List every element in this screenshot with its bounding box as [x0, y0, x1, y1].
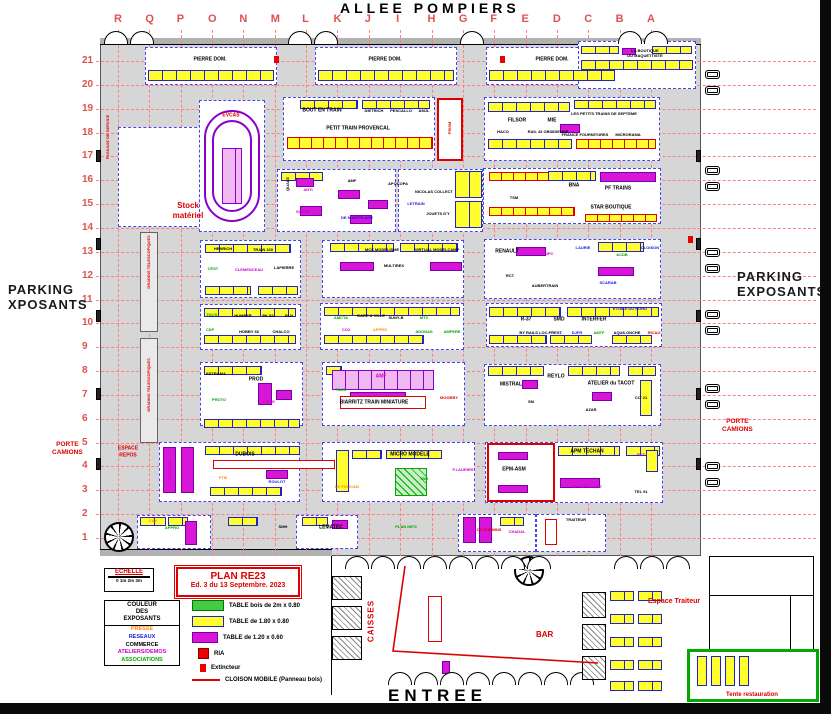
car-icon [705, 400, 720, 409]
label-pierre-dom: PIERRE DOM. [193, 58, 226, 63]
table-strip-y [489, 335, 547, 344]
evcas-center-table [222, 148, 242, 204]
wall-door [696, 150, 701, 162]
car-icon [705, 462, 720, 471]
label-train-160: TRAIN 160 [253, 248, 273, 252]
table-strip-m [463, 517, 476, 543]
label-suny-b: SUNY-B [388, 316, 403, 320]
label-pf-trains: PF TRAINS [605, 187, 631, 192]
table-strip-rbox [545, 519, 557, 545]
color-key-presse: PRESSE [105, 626, 179, 634]
scale-box: ECHELLE 0 1m 2m 3m [104, 568, 154, 592]
color-key-associations: ASSOCIATIONS [105, 657, 179, 665]
label-pescallo: PESCALLO [390, 109, 412, 113]
caisses-label: CAISSES [367, 600, 376, 642]
table-strip-y [489, 70, 615, 81]
door-arc [130, 31, 154, 44]
label-aquilonche: AQUILONCHE [614, 331, 641, 335]
letterbox-bottom [0, 703, 831, 714]
table-strip-y [318, 70, 454, 81]
label-mpc: MPC [545, 252, 554, 256]
table-strip-m [368, 200, 388, 209]
legend-item-cloison-mobile-panneau-bois: CLOISON MOBILE (Panneau bois) [192, 677, 342, 683]
color-key-commerce: COMMERCE [105, 642, 179, 650]
label-prod: PROD [249, 378, 263, 383]
legend-label: TABLE de 1.20 x 0.60 [223, 635, 283, 641]
grid-column-letter-l: L [302, 13, 309, 25]
legend-item-table-de-1-80-x-0-80: TABLE de 1.80 x 0.80 [192, 616, 342, 627]
grid-column-letter-n: N [239, 13, 247, 25]
table-strip-y [228, 517, 258, 526]
espace-traiteur-label: Espace Traiteur [648, 598, 700, 605]
parking-right-line2: EXPOSANTS [737, 285, 826, 300]
grid-column-letter-b: B [616, 13, 624, 25]
label-clemenceau: CLEMENCEAU [235, 268, 263, 272]
car-icon [705, 264, 720, 273]
label-chalco: CHALCO [272, 330, 289, 334]
label-cf-chemins: CF CHEMINS [477, 528, 502, 532]
label-cdf: CDF [206, 328, 214, 332]
label-plan-info: PLAN INFO [395, 525, 417, 529]
wall-door [696, 310, 701, 322]
door-arc [618, 31, 642, 44]
label-renault: RENAULT [495, 250, 519, 255]
label-mie: MIE [548, 119, 557, 124]
label-appro: APPRO [373, 328, 387, 332]
label-vauliers: VAULIERS [168, 460, 172, 480]
grid-row-number-2: 2 [82, 508, 88, 519]
label-petit-train-provencal: PETIT TRAIN PROVENCAL [326, 127, 390, 132]
label-virtual-modelcamp: VIRTUAL MODELCAMP [415, 248, 460, 252]
label-tsm: TSM [510, 196, 518, 200]
table-strip-m [498, 452, 528, 460]
label-acdb: ACDB [616, 253, 628, 257]
legend-swatch-ria [198, 648, 209, 659]
color-key-title-2: DES [105, 609, 179, 616]
label-epm-asm: EPM-ASM [502, 468, 526, 473]
grid-column-letter-d: D [553, 13, 561, 25]
label-rvt: RVT [637, 453, 645, 457]
label-repos: REPOS [119, 454, 137, 459]
label-cf-outillage: CF OUTILLAGE [572, 485, 602, 489]
legend-swatch-line [192, 679, 220, 681]
label-anti: ANTI [303, 188, 312, 192]
label-multirex: MULTIREX [384, 264, 404, 268]
wall-door [96, 388, 101, 400]
table-strip-r [287, 137, 433, 149]
table-strip-y [352, 450, 382, 459]
legend-items: TABLE bois de 2m x 0.80TABLE de 1.80 x 0… [192, 600, 342, 688]
label-micro-modele: MICRO MODELE [390, 453, 429, 458]
grid-row-number-16: 16 [82, 174, 93, 185]
letterbox-right [820, 0, 831, 714]
label-facs: FACS [207, 313, 218, 317]
grid-column-letter-a: A [647, 13, 655, 25]
label-prism: PRISM [448, 122, 452, 135]
legend-label: TABLE bois de 2m x 0.80 [229, 603, 300, 609]
label-de-martelage: DE MARTELAGE [341, 216, 373, 220]
label-evcas: EVCAS [222, 114, 239, 119]
label-pierre-dom: PIERRE DOM. [368, 58, 401, 63]
plan-edition: Ed. 3 du 13 Septembre. 2023 [178, 582, 298, 589]
door-arc [288, 31, 312, 44]
wall-door [96, 458, 101, 470]
table-strip-y [574, 100, 656, 109]
wheel-icon [104, 522, 134, 552]
plan-title: PLAN RE23 [178, 571, 298, 582]
grid-row-number-5: 5 [82, 437, 88, 448]
parking-left-line2: XPOSANTS [8, 298, 88, 313]
table-strip-y [148, 70, 274, 81]
label-bna: BNA [569, 184, 580, 189]
label-scarab: SCARAB [599, 281, 616, 285]
porte-right-line1: PORTE [722, 418, 753, 426]
label-ricau: RICAU [648, 331, 661, 335]
label-f-laurier: F.LAURIER [453, 468, 474, 472]
table-strip-y [548, 171, 596, 181]
car-icon [705, 86, 720, 95]
legend-label: Extincteur [211, 665, 240, 671]
label-by-rails-loc-prest: BY RAILS LOC.PREST. [519, 331, 562, 335]
label-laurie: LAURIE [576, 246, 591, 250]
table-strip-m [592, 392, 612, 401]
wall-door [696, 458, 701, 470]
table-strip-y [568, 366, 620, 376]
table-strip-m [598, 267, 634, 276]
table-strip-y [628, 366, 656, 376]
color-key-title-3: EXPOSANTS [105, 616, 179, 623]
label-dubois: DUBOIS [235, 453, 254, 458]
label-amcta: AMCTA [334, 316, 348, 320]
label-aubertrain: AUBERTRAIN [532, 284, 558, 288]
table-strip-rbox [213, 460, 335, 469]
grid-row-number-13: 13 [82, 246, 93, 257]
label-mat-riel: matériel [173, 212, 204, 220]
plan-title-box: PLAN RE23 Ed. 3 du 13 Septembre. 2023 [176, 567, 300, 597]
wall-door [696, 238, 701, 250]
label-mcs-modelisme: MCS MODELISME [365, 248, 399, 252]
grid-row-number-1: 1 [82, 532, 88, 543]
grid-column-letter-p: P [177, 13, 184, 25]
legend-item-ria: RIA [192, 648, 342, 659]
table-strip-m [266, 470, 288, 479]
legend-swatch-green [192, 600, 224, 611]
color-key-title: COULEUR DES EXPOSANTS [105, 601, 179, 626]
label-rct: RCT [506, 274, 514, 278]
table-strip-y [488, 366, 544, 376]
car-icon [705, 166, 720, 175]
label-interfer: INTERFER [582, 318, 607, 323]
legend-item-table-bois-de-2m-x-0-80: TABLE bois de 2m x 0.80 [192, 600, 342, 611]
label-lapierre: LAPIERRE [274, 266, 294, 270]
label-henrich: HENRICH [214, 247, 232, 251]
label-tel-91: TEL 91 [634, 490, 647, 494]
label-amf: AMF [348, 179, 357, 183]
label-amtf: AMTF [593, 331, 604, 335]
car-icon [705, 182, 720, 191]
grid-row-number-6: 6 [82, 413, 88, 424]
table-strip-y [455, 171, 482, 198]
label-gradins-telescopiques: GRADINS TELESCOPIQUES [147, 358, 151, 412]
label-amf: AMF [376, 375, 387, 380]
grid-column-letter-q: Q [145, 13, 154, 25]
table-strip-m [338, 190, 360, 199]
car-icon [705, 478, 720, 487]
grid-row-number-9: 9 [82, 341, 88, 352]
table-strip-m [340, 262, 374, 271]
table-strip-gg [395, 468, 427, 496]
grid-row-number-21: 21 [82, 55, 93, 66]
floor-plan-canvas: RQPONMLKJIHGFEDCBA1234567891011121314151… [0, 0, 831, 714]
table-strip-m [522, 380, 538, 389]
table-strip-y [258, 286, 298, 295]
wall-door [96, 150, 101, 162]
door-arc [644, 31, 668, 44]
label-cloison: CLOISON [641, 246, 659, 250]
car-icon [705, 70, 720, 79]
door-arc [460, 31, 484, 44]
label-smd: SMD [553, 318, 564, 323]
label-tente-restauration: Tente restauration [726, 692, 778, 698]
table-strip-y [455, 201, 482, 228]
label-humper: HUMPER [234, 314, 251, 318]
grid-row-number-20: 20 [82, 79, 93, 90]
label-pln: PLN [285, 314, 293, 318]
parking-right-label: PARKING EXPOSANTS [737, 270, 826, 300]
label-microrama: MICRORAMA [615, 133, 640, 137]
grid-row-number-15: 15 [82, 198, 93, 209]
label-moorby: MOORBY [440, 396, 458, 400]
table-strip-m [498, 485, 528, 493]
label-haco: HACO [497, 130, 509, 134]
grid-row-number-3: 3 [82, 484, 88, 495]
legend-item-table-de-1-20-x-0-60: TABLE de 1.20 x 0.60 [192, 632, 342, 643]
table-strip-m [296, 178, 314, 187]
label-passage-de-service: PASSAGE DE SERVICE [106, 115, 110, 160]
label-ampere: AMPERE [443, 330, 460, 334]
table-strip-r [585, 214, 657, 222]
label-mtv: MTV [420, 316, 428, 320]
label-traiteur: TRAITEUR [566, 518, 586, 522]
label-etoile-du-nord: ETOILE DU NORD [613, 307, 647, 311]
label-reylo: REYLO [547, 375, 564, 380]
table-strip-y [210, 487, 282, 496]
label-gare-ville: GARE & VILLE [357, 314, 385, 318]
label-bout-en-train: BOUT EN TRAIN [302, 109, 341, 114]
label-co-21: CO' 21 [635, 396, 648, 400]
car-icon [705, 310, 720, 319]
parking-left-line1: PARKING [8, 283, 88, 298]
label-cav: CAV [149, 519, 157, 523]
label-apm-techan: APM TECHAN [570, 450, 603, 455]
legend-swatch-magenta [192, 632, 218, 643]
wall-door [696, 388, 701, 400]
grid-row-number-12: 12 [82, 270, 93, 281]
label-france-fournitures: FRANCE FOURNITURES [562, 133, 609, 137]
legend-swatch-ext [200, 664, 206, 672]
label-apocopa: APOCOPA [388, 182, 408, 186]
porte-left-line1: PORTE [52, 441, 83, 449]
label-quale: QUALE [286, 177, 290, 191]
label-filsor: FILSOR [508, 119, 526, 124]
porte-camions-left: PORTE CAMIONS [52, 441, 83, 458]
table-strip-y [488, 102, 570, 112]
table-strip-y [711, 656, 721, 686]
exhibitor-color-key: COULEUR DES EXPOSANTS PRESSERESEAUXCOMME… [104, 600, 180, 666]
porte-right-line2: CAMIONS [722, 426, 753, 434]
table-strip-m [430, 262, 462, 271]
porte-left-line2: CAMIONS [52, 449, 83, 457]
grid-column-letter-c: C [584, 13, 592, 25]
grid-column-letter-m: M [271, 13, 280, 25]
label-nicolas-collect: NICOLAS COLLECT [415, 190, 453, 194]
label-mistral: MISTRAL [500, 383, 522, 388]
door-arc [104, 31, 128, 44]
label-appro: APPRO [165, 526, 179, 530]
color-key-ateliers-demos: ATELIERS/DEMOS [105, 649, 179, 657]
label-pk-521: PK 521 [262, 314, 275, 318]
table-strip-m [600, 172, 656, 182]
label-gradins-telescopiques: GRADINS TELESCOPIQUES [147, 235, 151, 289]
label-hobby-66: HOBBY 66 [239, 330, 259, 334]
extincteur-icon [688, 236, 693, 243]
table-strip-y [489, 307, 561, 317]
car-icon [705, 248, 720, 257]
legend-label: TABLE de 1.80 x 0.80 [229, 619, 289, 625]
label-atelier-du-tacot: ATELIER du TACOT [588, 382, 635, 387]
legend-label: RIA [214, 651, 224, 657]
grid-row-number-14: 14 [82, 222, 93, 233]
label-r-37: R-37 [521, 318, 532, 323]
allee-pompiers-title: ALLEE POMPIERS [340, 0, 520, 16]
label-pierre-dom: PIERRE DOM. [535, 58, 568, 63]
label-surre: SURRE [296, 210, 310, 214]
label-letrain: LETRAIN [407, 202, 424, 206]
table-strip-y [324, 335, 424, 344]
table-strip-y [598, 242, 644, 252]
color-key-reseaux: RESEAUX [105, 634, 179, 642]
label-smh: SMH [279, 525, 288, 529]
label-cfst: CFST [208, 267, 218, 271]
label-dietrich: DIETRICH [365, 109, 384, 113]
door-arc [314, 31, 338, 44]
table-strip-r [576, 139, 656, 149]
table-strip-m [185, 521, 197, 545]
table-strip-y [646, 450, 658, 472]
label-co2: CO2 [342, 328, 350, 332]
table-strip-y [550, 335, 592, 344]
legend-label: CLOISON MOBILE (Panneau bois) [225, 677, 322, 683]
label-lematec: LEMATEC [319, 526, 343, 531]
label-amjl: AMJL [419, 109, 430, 113]
label-livre: LIVRE [263, 400, 275, 404]
table-strip-y [204, 335, 296, 344]
grid-row-number-18: 18 [82, 127, 93, 138]
porte-camions-right: PORTE CAMIONS [722, 418, 753, 435]
extincteur-icon [500, 56, 505, 63]
label-chadal: CHADAL [509, 530, 526, 534]
queue-lines [331, 556, 710, 695]
label-azar: AZAR [585, 408, 596, 412]
grid-line-horizontal [96, 300, 816, 301]
parking-right-line1: PARKING [737, 270, 826, 285]
table-strip-m [181, 447, 194, 493]
label-proto: PROTO [212, 398, 226, 402]
grid-row-number-19: 19 [82, 103, 93, 114]
label-le-pelican: LE PELICAN [335, 485, 359, 489]
table-strip-y [612, 335, 652, 344]
scale-marks: 0 1m 2m 3m [108, 576, 150, 583]
table-strip-r [489, 207, 575, 216]
grid-row-number-4: 4 [82, 460, 88, 471]
label-tbg: TBG [420, 477, 428, 481]
wall-door [96, 238, 101, 250]
grid-row-number-17: 17 [82, 150, 93, 161]
table-strip-y [488, 139, 572, 149]
parking-left-label: PARKING XPOSANTS [8, 283, 88, 313]
table-strip-y [500, 517, 524, 526]
extincteur-icon [274, 56, 279, 63]
label-du-maquettiste: DU MAQUETTISTE [627, 54, 663, 58]
label-jouets-d-y: JOUETS D'Y [426, 212, 450, 216]
label-estrama: ESTRAMA [206, 372, 226, 376]
label-star-boutique: STAR BOUTIQUE [590, 206, 631, 211]
label-stock: Stock [177, 202, 199, 210]
grid-row-number-10: 10 [82, 317, 93, 328]
table-strip-y [581, 46, 619, 54]
label-biarritz-train-miniature: BIARRITZ TRAIN MINIATURE [340, 401, 409, 406]
grid-column-letter-r: R [114, 13, 122, 25]
table-strip-y [581, 60, 693, 70]
legend-item-extincteur: Extincteur [192, 664, 342, 672]
label-djfr: DJFR [572, 331, 582, 335]
color-key-entries: PRESSERESEAUXCOMMERCEATELIERS/DEMOSASSOC… [105, 626, 179, 666]
grid-row-number-7: 7 [82, 389, 88, 400]
table-strip-y [204, 419, 300, 428]
wall-door [96, 310, 101, 322]
table-strip-y [725, 656, 735, 686]
table-strip-y [739, 656, 749, 686]
bar-label: BAR [536, 630, 553, 639]
label-sm: SM [528, 400, 534, 404]
table-strip-y [205, 286, 251, 295]
grid-column-letter-e: E [522, 13, 529, 25]
car-icon [705, 326, 720, 335]
legend-swatch-yellow [192, 616, 224, 627]
label-ftm: FTM [219, 476, 227, 480]
table-strip-m [516, 247, 546, 256]
label-espace: ESPACE [118, 447, 138, 452]
label-facs: FACS [336, 388, 347, 392]
label-adonas: ADONAS [415, 330, 432, 334]
grid-column-letter-o: O [208, 13, 217, 25]
label-roulot: ROULOT [269, 480, 286, 484]
table-strip-m [276, 390, 292, 400]
car-icon [705, 384, 720, 393]
color-key-title-1: COULEUR [105, 602, 179, 609]
scale-title: ECHELLE [105, 569, 153, 575]
grid-row-number-8: 8 [82, 365, 88, 376]
label-les-petits-trains-de-septeme: LES PETITS TRAINS DE SEPTEME [571, 112, 637, 116]
